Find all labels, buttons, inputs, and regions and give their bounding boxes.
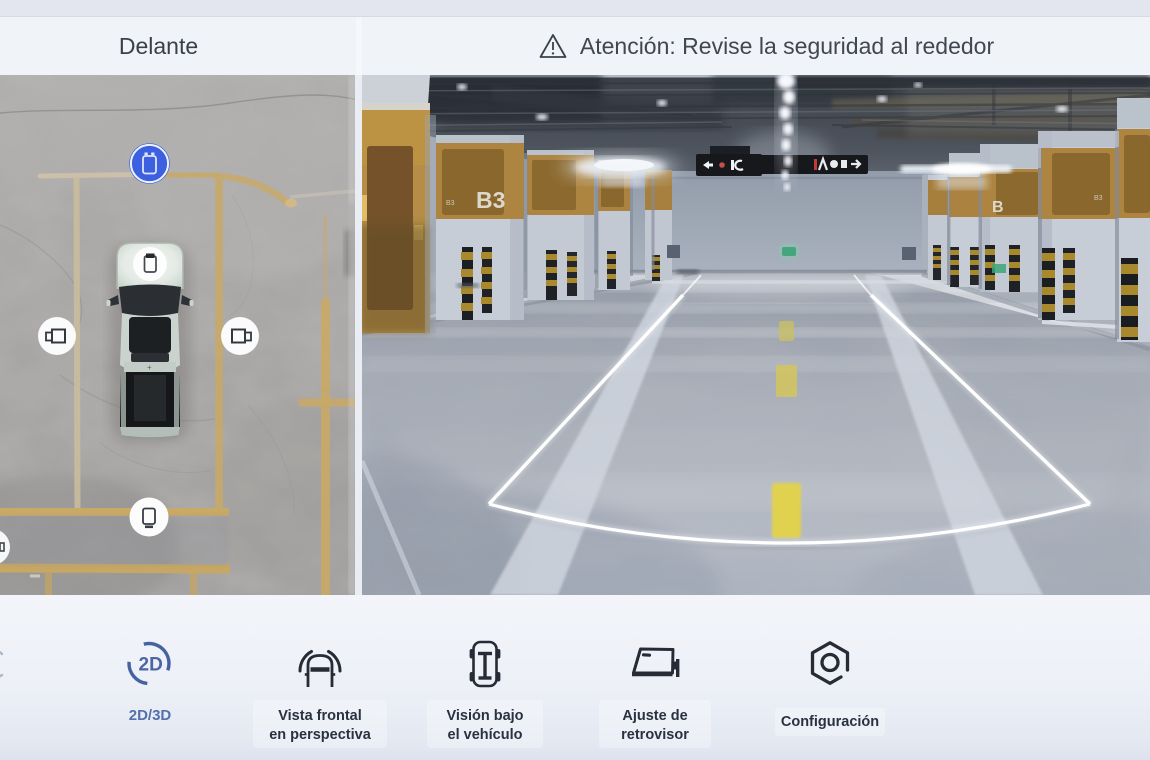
- svg-text:B3: B3: [1094, 195, 1103, 202]
- svg-text:+: +: [147, 363, 152, 372]
- svg-text:2D: 2D: [139, 655, 163, 676]
- svg-text:B3: B3: [476, 187, 505, 213]
- svg-text:B3: B3: [446, 200, 455, 207]
- svg-text:B: B: [992, 199, 1004, 216]
